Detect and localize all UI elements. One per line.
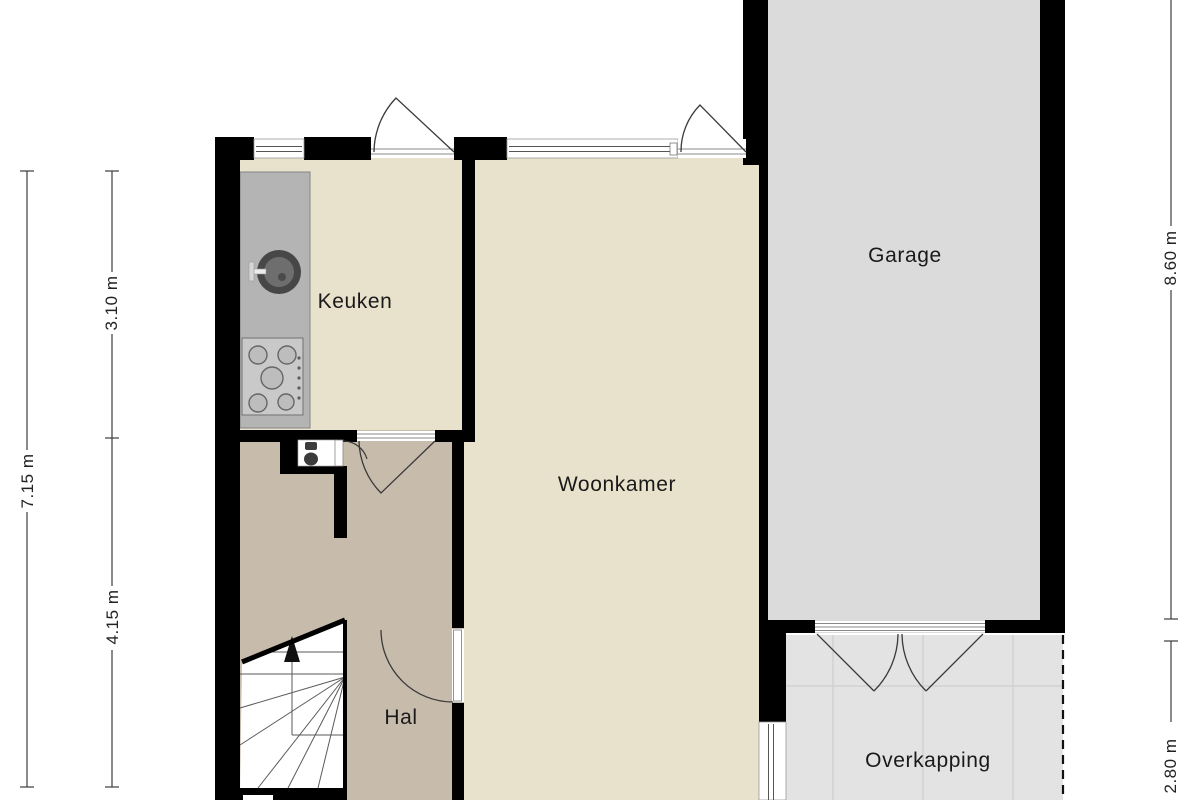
wall-hal-woonkamer-upper xyxy=(452,440,464,628)
wall-keuken-woonkamer xyxy=(462,155,475,440)
wall-top-seg-c xyxy=(454,137,507,160)
floorplan-drawing xyxy=(0,0,1200,800)
wall-hal-woonkamer-lower xyxy=(452,703,464,800)
wall-hal-stub xyxy=(334,474,347,538)
door-keuken-exterior xyxy=(371,98,454,158)
dim-line-right-upper xyxy=(1164,0,1178,619)
room-label-hal: Hal xyxy=(384,706,417,730)
kitchen-fixtures xyxy=(240,172,310,428)
wall-wc-left xyxy=(280,440,298,474)
stove-icon xyxy=(242,338,303,415)
dim-label-left-lower: 4.15 m xyxy=(103,590,123,645)
room-label-woonkamer: Woonkamer xyxy=(558,473,676,497)
wc-door-panel xyxy=(335,440,343,466)
room-label-garage: Garage xyxy=(868,244,942,268)
dim-label-right-upper: 8.60 m xyxy=(1161,231,1181,286)
dim-label-left-upper: 3.10 m xyxy=(102,276,122,331)
window-woonkamer-right xyxy=(759,722,786,800)
wall-garage-woonkamer xyxy=(759,160,768,625)
wall-top-seg-b xyxy=(304,137,371,160)
window-keuken-top xyxy=(254,139,304,158)
room-label-overkapping: Overkapping xyxy=(865,749,991,773)
room-label-keuken: Keuken xyxy=(318,290,393,314)
window-woonkamer-top xyxy=(507,139,678,158)
sink-basin xyxy=(264,257,294,287)
garage-floor xyxy=(743,0,1065,633)
wc-cistern-icon xyxy=(305,442,317,450)
wall-garage-left-upper xyxy=(743,0,768,165)
dim-line-right-lower xyxy=(1164,641,1178,722)
sink-drain xyxy=(278,273,286,281)
wall-bottom-opening xyxy=(243,795,273,800)
toilet-icon xyxy=(304,453,318,466)
door-panel xyxy=(454,630,462,701)
wall-woonkamer-overkapping xyxy=(759,633,786,722)
wall-garage-bottom-left xyxy=(759,620,815,633)
stairs-right-edge xyxy=(343,620,347,790)
wall-garage-right xyxy=(1040,0,1065,633)
wc-room xyxy=(298,440,337,466)
dim-label-right-lower: 2.80 m xyxy=(1161,739,1181,794)
wall-left-exterior xyxy=(215,137,240,800)
wall-top-seg-a xyxy=(215,137,254,160)
wall-wc-bottom xyxy=(298,466,347,474)
overkapping-floor xyxy=(786,635,1063,800)
faucet-handle xyxy=(249,262,254,281)
floorplan-canvas: Keuken Woonkamer Garage Hal Overkapping … xyxy=(0,0,1200,800)
wall-garage-bottom-right xyxy=(985,620,1065,633)
room-fills xyxy=(240,0,1065,800)
dim-label-left-total: 7.15 m xyxy=(18,454,38,509)
door-woonkamer-exterior xyxy=(678,105,746,158)
